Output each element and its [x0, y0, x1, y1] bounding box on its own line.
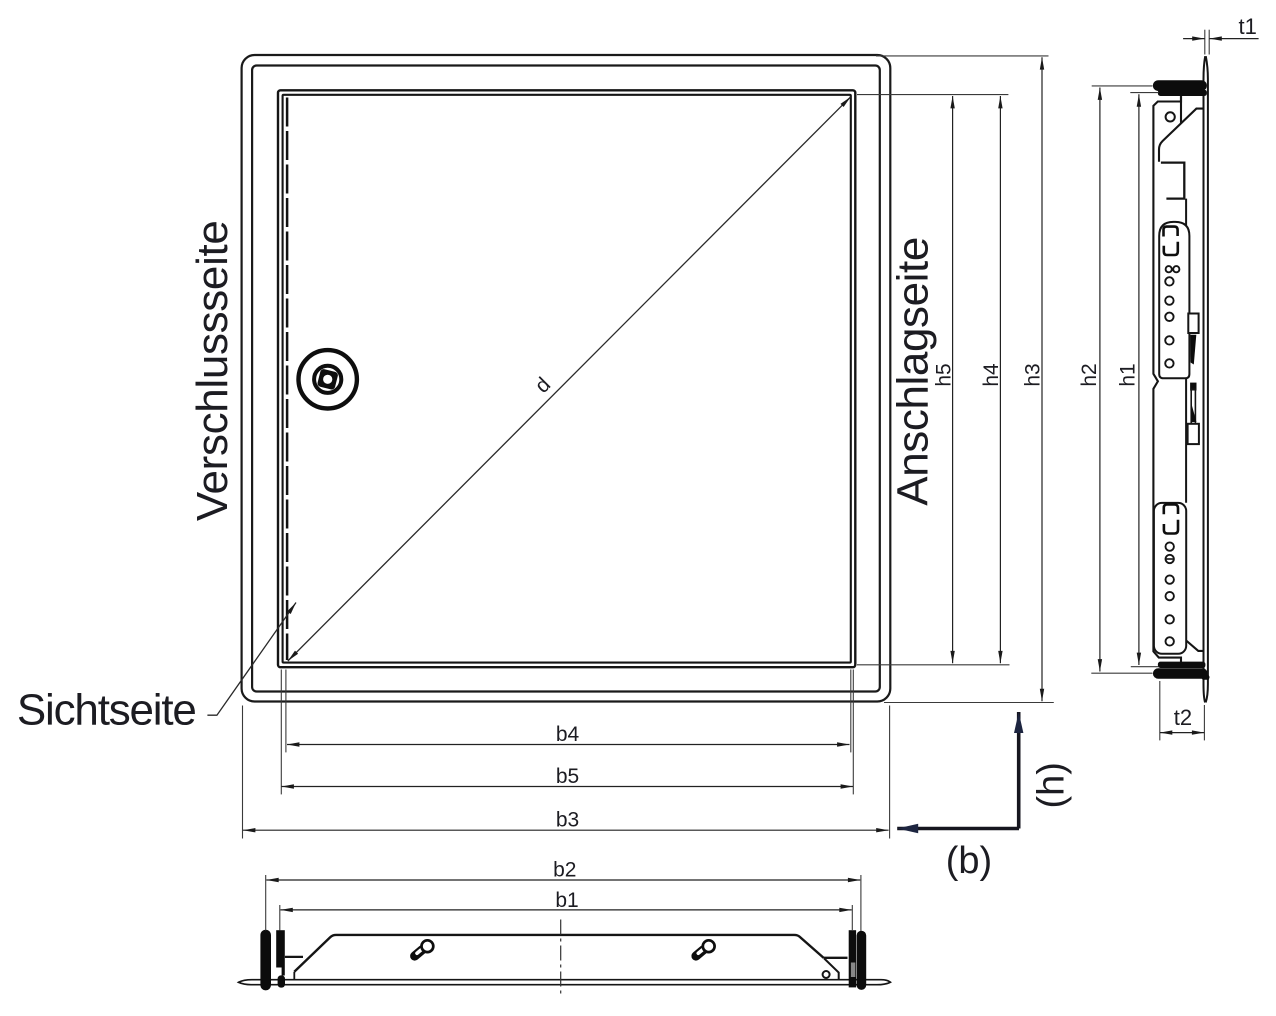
svg-text:h5: h5	[932, 363, 955, 386]
svg-text:Verschlussseite: Verschlussseite	[188, 220, 237, 521]
svg-text:d: d	[531, 373, 556, 398]
svg-text:t2: t2	[1174, 705, 1192, 730]
svg-text:h3: h3	[1022, 363, 1045, 386]
svg-text:Anschlagseite: Anschlagseite	[889, 237, 938, 506]
svg-text:h2: h2	[1078, 363, 1101, 386]
svg-text:b1: b1	[555, 889, 578, 912]
svg-text:b2: b2	[553, 858, 576, 881]
svg-text:b3: b3	[556, 809, 579, 832]
svg-text:h1: h1	[1117, 363, 1140, 386]
svg-text:b5: b5	[556, 765, 579, 788]
svg-text:(b): (b)	[946, 840, 992, 882]
svg-text:Sichtseite: Sichtseite	[17, 686, 197, 735]
svg-text:t1: t1	[1239, 14, 1257, 39]
svg-text:h4: h4	[980, 363, 1003, 387]
svg-text:(h): (h)	[1031, 762, 1073, 808]
svg-text:b4: b4	[556, 723, 580, 746]
